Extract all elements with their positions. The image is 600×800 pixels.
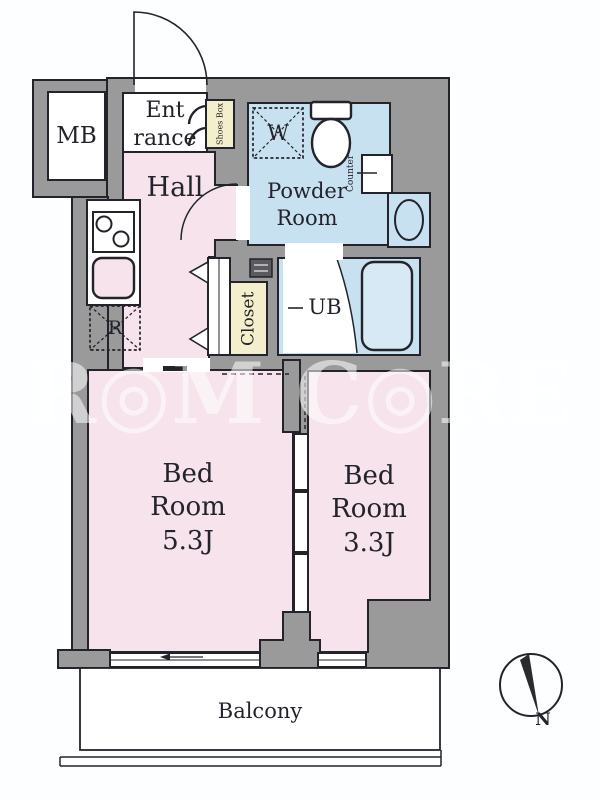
window-bedroom-2: [318, 653, 366, 667]
bedroom-1-line2: Room: [108, 491, 268, 524]
entrance-label-line1: Ent: [123, 97, 207, 125]
ub-label: UB: [302, 295, 348, 319]
hall-label: Hall: [125, 172, 225, 203]
counter-label: Counter: [345, 147, 357, 199]
entrance-door-gap: [135, 79, 206, 94]
floor-plan: MB Ent rance Shoes Box Hall W Powder Roo…: [0, 0, 600, 800]
sliding-door-panel: [294, 434, 308, 490]
window-bedroom-1: [108, 653, 260, 667]
counter-box: [362, 155, 392, 193]
powder-label-line2: Room: [252, 205, 362, 232]
compass-icon: [500, 654, 562, 716]
sliding-door-panel: [294, 492, 308, 552]
fridge-label: R: [90, 306, 140, 350]
compass-north-label: N: [531, 710, 555, 730]
washer-label: W: [253, 108, 303, 158]
sink-icon: [93, 258, 134, 298]
shoes-box-label: Shoes Box: [206, 100, 234, 148]
bedroom-1-line1: Bed: [108, 458, 268, 491]
bedroom-2-line1: Bed: [308, 460, 430, 493]
entrance-door-arc: [134, 12, 207, 94]
balcony-label: Balcony: [80, 699, 440, 723]
sliding-door-panel: [294, 554, 308, 612]
mb-label: MB: [48, 92, 105, 180]
bedroom-2-size: 3.3J: [308, 527, 430, 560]
wall-step-block: [58, 650, 110, 668]
bedroom-2-label: Bed Room 3.3J: [308, 460, 430, 560]
entrance-label-line2: rance: [123, 125, 207, 153]
sliding-door-leaf: [163, 366, 187, 371]
stove-icon: [93, 212, 134, 252]
closet-label: Closet: [230, 282, 267, 355]
bedroom-2-line2: Room: [308, 493, 430, 526]
bedroom-1-size: 5.3J: [108, 525, 268, 558]
entrance-label: Ent rance: [123, 97, 207, 153]
wash-basin-icon: [388, 193, 430, 247]
bedroom-1-label: Bed Room 5.3J: [108, 458, 268, 558]
water-heater-icon: [250, 259, 272, 277]
kitchen-counter: [87, 200, 140, 305]
bathtub-icon: [362, 262, 412, 350]
